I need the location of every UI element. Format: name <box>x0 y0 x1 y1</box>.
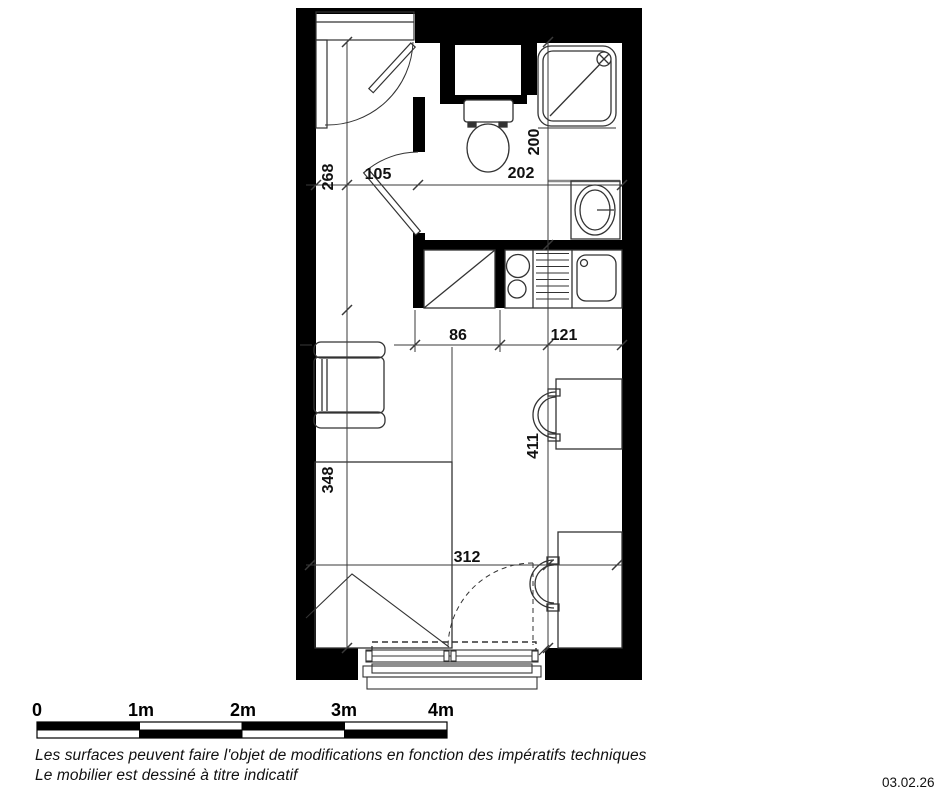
scale-label-0: 0 <box>32 700 42 720</box>
shower <box>538 46 616 128</box>
entry-wardrobe <box>316 12 414 128</box>
dim-bathroom-depth: 200 <box>526 129 543 156</box>
duct-niche <box>455 45 521 95</box>
kitchen-drainer <box>536 254 569 300</box>
dim-entry-depth: 268 <box>320 164 337 191</box>
dim-kitchen-right: 121 <box>551 327 578 344</box>
footer-note-1: Les surfaces peuvent faire l'objet de mo… <box>35 747 647 765</box>
footer-note-2: Le mobilier est dessiné à titre indicati… <box>35 767 298 785</box>
desk-upper <box>556 379 622 449</box>
floor-plan-page: 268 105 202 200 86 121 348 411 312 0 1m … <box>0 0 945 800</box>
dim-kitchen-left: 86 <box>449 327 467 344</box>
dim-living-width: 312 <box>454 549 481 566</box>
dimension-labels: 268 105 202 200 86 121 348 411 312 <box>320 129 577 566</box>
scale-bar: 0 1m 2m 3m 4m <box>32 700 454 738</box>
entrance-door <box>325 42 415 125</box>
armchair <box>314 342 385 428</box>
kitchen-cabinet <box>424 250 495 308</box>
kitchen-sink <box>577 255 616 301</box>
kitchen-hob <box>507 255 530 299</box>
desk-lower <box>558 532 622 648</box>
washbasin <box>548 181 620 239</box>
scale-label-4m: 4m <box>428 700 454 720</box>
floor-plan-drawing: 268 105 202 200 86 121 348 411 312 0 1m … <box>0 0 945 800</box>
dim-bathroom-width: 202 <box>508 165 535 182</box>
plan-date: 03.02.26 <box>882 775 935 790</box>
dim-living-depth: 348 <box>320 467 337 494</box>
french-window <box>363 563 549 689</box>
scale-label-1m: 1m <box>128 700 154 720</box>
bathroom-door <box>364 152 421 235</box>
scale-label-2m: 2m <box>230 700 256 720</box>
scale-label-3m: 3m <box>331 700 357 720</box>
dim-entry-width: 105 <box>365 166 392 183</box>
window-frame <box>363 650 541 689</box>
toilet <box>464 100 513 172</box>
dim-living-depth-right: 411 <box>525 433 542 459</box>
